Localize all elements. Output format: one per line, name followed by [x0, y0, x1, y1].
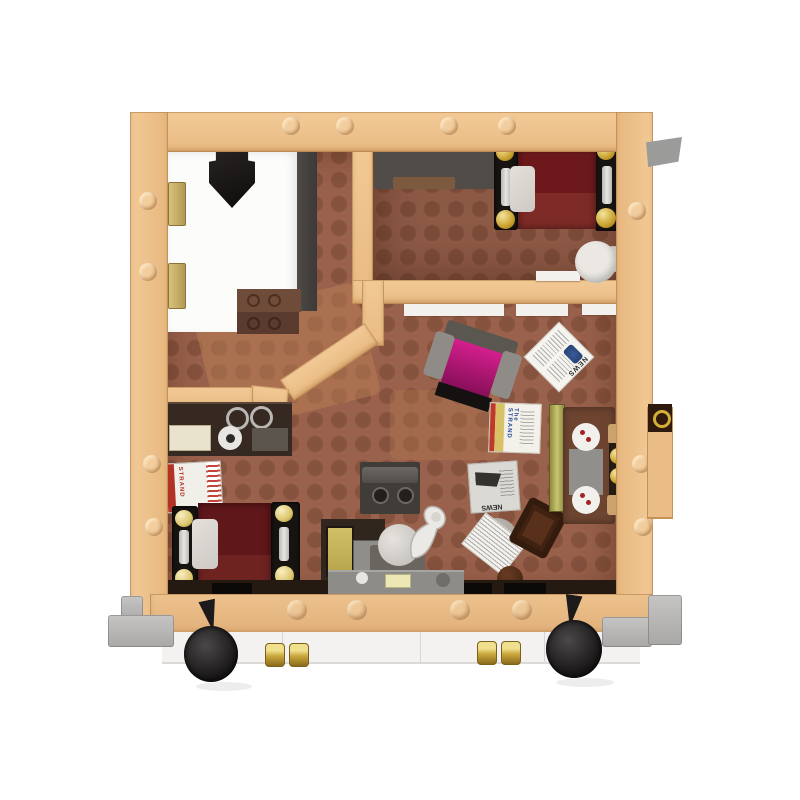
outer-wall-right [616, 112, 653, 614]
sideboard-strip [297, 148, 317, 311]
baseboard-tile [404, 304, 504, 316]
magazine-title: The STRAND [505, 408, 519, 452]
handcuffs [250, 406, 273, 429]
gold-coupler [477, 641, 497, 665]
butter-dish [385, 574, 411, 588]
pale-knob [275, 505, 293, 522]
door-knocker-ring [653, 410, 671, 428]
bed-pillow [510, 166, 535, 212]
brass-knob [496, 210, 515, 229]
bed-post [179, 530, 189, 564]
door-mat [237, 312, 299, 334]
band-stud [347, 600, 367, 620]
stove-burner [372, 487, 389, 504]
gold-coupler [265, 643, 285, 667]
band-stud [450, 600, 470, 620]
bumper-gray [648, 595, 682, 645]
wall-stud [145, 518, 163, 536]
cherry-dot [586, 437, 591, 442]
gauge-center [226, 434, 235, 443]
bedroom-bottom-wall [352, 280, 652, 304]
plate-seam [420, 632, 421, 662]
bed-pillow [192, 519, 218, 569]
gold-coupler-pair [265, 643, 309, 667]
wall-stud [628, 202, 646, 220]
wall-stud [336, 117, 354, 135]
swirl-mark [247, 294, 260, 307]
wheel-shadow [196, 682, 252, 691]
band-stud [287, 600, 307, 620]
gold-coupler [501, 641, 521, 665]
wall-stud [634, 518, 652, 536]
cherry-dot [580, 493, 585, 498]
bench-knob [436, 573, 450, 587]
bed-post [279, 527, 289, 561]
wall-stud [498, 117, 516, 135]
gold-coupler-pair [477, 641, 521, 665]
brass-knob [596, 208, 616, 228]
bumper-gray [602, 617, 652, 647]
cherry-dot [586, 500, 591, 505]
magazine-textlines [519, 410, 534, 446]
swirl-mark [247, 317, 260, 330]
edge-slot [212, 583, 252, 594]
newsprint-columns [499, 468, 515, 499]
round-table [575, 241, 617, 283]
door-hinge [168, 263, 186, 309]
swirl-mark [268, 317, 281, 330]
wheel [184, 626, 238, 682]
wheel-shadow [556, 678, 614, 687]
cherry-dot [580, 430, 585, 435]
flag-illustration [475, 470, 502, 488]
band-stud [512, 600, 532, 620]
newspaper-tile: NEWS [467, 460, 520, 513]
gramophone-horn [398, 498, 458, 564]
bedroom-left-wall [352, 132, 373, 304]
book-spine-label: STRAND [177, 467, 185, 498]
outer-wall-top [136, 112, 653, 152]
round-tile-cherries [572, 486, 600, 514]
wall-stud [139, 192, 157, 210]
plate-seam [544, 632, 545, 662]
wall-stud [282, 117, 300, 135]
baseboard-tile [536, 271, 580, 281]
outer-wall-left [130, 112, 168, 636]
baseboard-tile [516, 304, 568, 316]
door-mat [237, 289, 301, 312]
wheel [546, 620, 602, 678]
stove-pipe [362, 467, 418, 483]
wall-stud [139, 263, 157, 281]
newspaper-title: NEWS [481, 502, 502, 510]
swirl-mark [268, 294, 281, 307]
bumper-gray [108, 615, 174, 647]
shelf-box-cream [169, 425, 211, 451]
wall-stud [143, 455, 161, 473]
shelf-box-gray [252, 428, 288, 451]
edge-slot [504, 583, 546, 594]
round-tile-cherries [572, 423, 600, 451]
magazine-band [494, 403, 505, 451]
gold-coupler [289, 643, 309, 667]
wall-stud [440, 117, 458, 135]
door-hinge [168, 182, 186, 226]
white-cup [356, 572, 368, 584]
door-knocker-tile [648, 404, 672, 432]
magazine-tile: The STRAND [488, 402, 542, 454]
pale-knob [175, 510, 193, 527]
counter-items [393, 177, 455, 189]
product-photo: STRAND NEWS [0, 0, 800, 800]
bed-post [602, 166, 612, 204]
